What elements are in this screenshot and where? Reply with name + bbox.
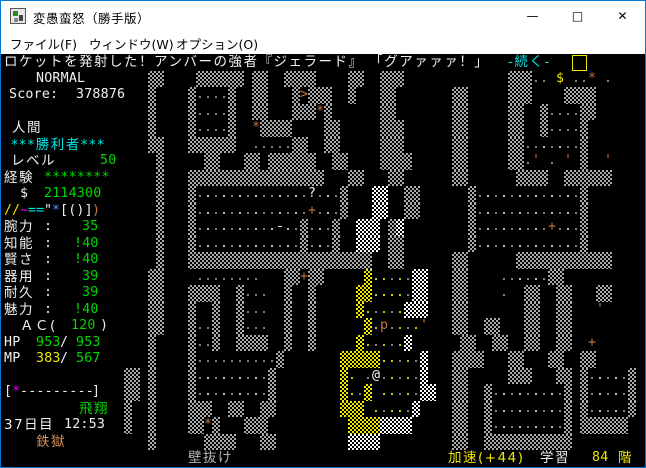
floor-empty: [580, 285, 588, 302]
floor-dot: .: [396, 351, 404, 368]
floor-dot: .: [204, 236, 212, 253]
floor-empty: [292, 318, 300, 335]
floor-dot: .: [492, 186, 500, 203]
maximize-button[interactable]: □: [555, 1, 600, 31]
wall-granite: [156, 269, 164, 286]
floor-empty: [348, 219, 356, 236]
floor-empty: [604, 137, 612, 154]
floor-empty: [372, 137, 380, 154]
floor-dot: .: [404, 269, 412, 286]
floor-empty: [308, 401, 316, 418]
floor-empty: [308, 368, 316, 385]
floor-empty: [348, 153, 356, 170]
floor-empty: [164, 384, 172, 401]
wall-granite: [380, 120, 388, 137]
floor-dot: .: [524, 236, 532, 253]
floor-dot: .: [236, 351, 244, 368]
wall-quartz: [396, 219, 404, 236]
floor-empty: [612, 87, 620, 104]
wall-granite: [212, 335, 220, 352]
floor-empty: [468, 87, 476, 104]
wall-granite: [516, 87, 524, 104]
floor-dot-vault: .: [388, 368, 396, 385]
floor-empty: [428, 351, 436, 368]
floor-empty: [436, 104, 444, 121]
floor-dot: .: [284, 186, 292, 203]
wall-granite: [468, 236, 476, 253]
floor-empty: [156, 434, 164, 451]
floor-empty: [420, 137, 428, 154]
floor-empty: [284, 401, 292, 418]
floor-dot-vault: .: [388, 285, 396, 302]
floor-empty: [236, 153, 244, 170]
wall-granite: [572, 87, 580, 104]
floor-empty: [308, 434, 316, 451]
floor-empty: [620, 302, 628, 319]
wall-granite: [300, 236, 308, 253]
wall-vault: [356, 417, 364, 434]
wall-quartz: [364, 236, 372, 253]
floor-empty: [476, 318, 484, 335]
floor-empty: [572, 302, 580, 319]
minimize-button[interactable]: —: [510, 1, 555, 31]
floor-dot: .: [476, 203, 484, 220]
wall-granite: [532, 318, 540, 335]
floor-empty: [604, 87, 612, 104]
floor-dot: .: [508, 203, 516, 220]
wall-granite: [388, 87, 396, 104]
map-glyph-gold: $: [556, 71, 564, 88]
floor-empty: [116, 335, 124, 352]
floor-empty: [364, 170, 372, 187]
floor-dot: .: [548, 384, 556, 401]
floor-dot: .: [388, 302, 396, 319]
floor-dot: .: [276, 203, 284, 220]
floor-dot: .: [380, 368, 388, 385]
wall-granite: [228, 252, 236, 269]
wall-granite: [220, 434, 228, 451]
floor-empty: [140, 318, 148, 335]
wall-granite: [284, 170, 292, 187]
floor-empty: [476, 120, 484, 137]
wall-granite: [580, 203, 588, 220]
floor-dot: .: [212, 384, 220, 401]
wall-granite: [460, 153, 468, 170]
floor-dot: .: [292, 236, 300, 253]
floor-dot-vault: .: [404, 384, 412, 401]
floor-empty: [132, 285, 140, 302]
floor-dot: .: [268, 236, 276, 253]
wall-granite: [388, 71, 396, 88]
floor-dot: .: [540, 186, 548, 203]
floor-dot: .: [244, 219, 252, 236]
floor-dot: .: [564, 203, 572, 220]
floor-dot: .: [556, 384, 564, 401]
floor-empty: [284, 351, 292, 368]
floor-empty: [516, 335, 524, 352]
wall-vault: [372, 351, 380, 368]
wall-granite: [460, 285, 468, 302]
wall-granite: [148, 71, 156, 88]
floor-empty: [452, 236, 460, 253]
wall-granite: [388, 104, 396, 121]
floor-dot: .: [252, 137, 260, 154]
floor-dot: .: [500, 236, 508, 253]
floor-empty: [316, 153, 324, 170]
floor-dot: .: [268, 219, 276, 236]
floor-empty: [164, 153, 172, 170]
sidebar-text: 鉄獄: [36, 434, 66, 451]
map-glyph-open-door: ': [564, 153, 572, 170]
wall-granite: [532, 335, 540, 352]
floor-empty: [404, 434, 412, 451]
wall-granite: [548, 269, 556, 286]
floor-empty: [284, 104, 292, 121]
floor-empty: [420, 219, 428, 236]
floor-empty: [628, 434, 636, 451]
floor-empty: [268, 269, 276, 286]
floor-dot: .: [620, 401, 628, 418]
floor-empty: [436, 269, 444, 286]
floor-dot: .: [556, 104, 564, 121]
floor-empty: [628, 269, 636, 286]
wall-granite: [236, 401, 244, 418]
wall-granite: [460, 401, 468, 418]
floor-empty: [140, 104, 148, 121]
floor-empty: [108, 219, 116, 236]
wall-granite: [292, 104, 300, 121]
floor-empty: [444, 170, 452, 187]
floor-empty: [436, 417, 444, 434]
floor-empty: [620, 186, 628, 203]
floor-dot: .: [196, 87, 204, 104]
floor-empty: [436, 252, 444, 269]
wall-granite: [260, 87, 268, 104]
floor-empty: [396, 203, 404, 220]
floor-dot: .: [324, 219, 332, 236]
floor-empty: [108, 186, 116, 203]
floor-empty: [548, 302, 556, 319]
floor-empty: [428, 137, 436, 154]
floor-empty: [564, 71, 572, 88]
floor-empty: [492, 285, 500, 302]
floor-empty: [140, 384, 148, 401]
message-text: ロケットを発射した！アンバーの強者『ジェラード』 「グアァァァ！」: [4, 54, 489, 71]
floor-empty: [268, 71, 276, 88]
wall-vault: [340, 368, 348, 385]
wall-granite: [388, 153, 396, 170]
wall-granite: [388, 236, 396, 253]
floor-dot: .: [556, 219, 564, 236]
floor-empty: [596, 120, 604, 137]
wall-quartz: [428, 384, 436, 401]
floor-dot: .: [284, 203, 292, 220]
floor-empty: [132, 401, 140, 418]
floor-dot: .: [604, 384, 612, 401]
wall-granite: [292, 170, 300, 187]
close-button[interactable]: ✕: [600, 1, 645, 31]
floor-empty: [604, 219, 612, 236]
floor-empty: [180, 318, 188, 335]
floor-dot: .: [516, 186, 524, 203]
sidebar-text: 567: [76, 351, 101, 368]
map-glyph-open-door: ': [532, 153, 540, 170]
floor-empty: [268, 285, 276, 302]
wall-granite: [628, 384, 636, 401]
sidebar-text: レベル: [11, 153, 56, 170]
floor-empty: [276, 87, 284, 104]
wall-granite: [284, 302, 292, 319]
wall-granite: [524, 87, 532, 104]
floor-empty: [140, 269, 148, 286]
floor-empty: [468, 137, 476, 154]
wall-granite: [452, 401, 460, 418]
floor-dot: .: [260, 285, 268, 302]
floor-empty: [388, 186, 396, 203]
floor-empty: [324, 335, 332, 352]
wall-granite: [452, 368, 460, 385]
wall-granite: [556, 351, 564, 368]
floor-empty: [164, 219, 172, 236]
floor-empty: [612, 335, 620, 352]
floor-empty: [172, 71, 180, 88]
floor-empty: [332, 170, 340, 187]
floor-dot: .: [260, 351, 268, 368]
wall-granite: [508, 434, 516, 451]
floor-empty: [188, 153, 196, 170]
floor-empty: [300, 335, 308, 352]
floor-empty: [220, 318, 228, 335]
wall-granite: [452, 318, 460, 335]
floor-empty: [332, 285, 340, 302]
floor-empty: [124, 285, 132, 302]
floor-empty: [620, 170, 628, 187]
floor-empty: [596, 236, 604, 253]
wall-granite: [148, 302, 156, 319]
floor-empty: [484, 104, 492, 121]
sidebar-text: !40: [74, 252, 99, 269]
floor-empty: [420, 104, 428, 121]
sidebar-text: [()]: [60, 203, 93, 220]
floor-dot: .: [564, 186, 572, 203]
floor-dot: .: [564, 104, 572, 121]
floor-empty: [116, 203, 124, 220]
sidebar-text: 39: [82, 269, 98, 286]
floor-empty: [292, 434, 300, 451]
floor-empty: [108, 401, 116, 418]
floor-empty: [356, 318, 364, 335]
floor-dot: .: [220, 219, 228, 236]
floor-empty: [620, 153, 628, 170]
floor-empty: [460, 71, 468, 88]
floor-empty: [108, 302, 116, 319]
floor-empty: [604, 269, 612, 286]
floor-dot: .: [372, 302, 380, 319]
floor-empty: [340, 104, 348, 121]
floor-empty: [124, 153, 132, 170]
floor-empty: [388, 203, 396, 220]
map-row: .'.'': [108, 153, 636, 170]
floor-empty: [148, 236, 156, 253]
wall-granite: [156, 170, 164, 187]
floor-empty: [364, 203, 372, 220]
floor-dot: .: [324, 186, 332, 203]
floor-empty: [140, 153, 148, 170]
floor-empty: [132, 318, 140, 335]
sidebar-text: ~: [20, 203, 28, 220]
floor-dot: .: [540, 203, 548, 220]
wall-granite: [188, 401, 196, 418]
floor-empty: [348, 285, 356, 302]
floor-empty: [476, 87, 484, 104]
wall-granite: [188, 219, 196, 236]
floor-dot-vault: .: [372, 285, 380, 302]
floor-empty: [116, 87, 124, 104]
floor-empty: [468, 170, 476, 187]
floor-empty: [492, 302, 500, 319]
floor-dot: .: [556, 186, 564, 203]
floor-dot: .: [204, 335, 212, 352]
floor-empty: [132, 170, 140, 187]
floor-dot: .: [196, 384, 204, 401]
floor-dot: .: [532, 186, 540, 203]
wall-granite: [308, 285, 316, 302]
floor-empty: [164, 252, 172, 269]
floor-empty: [324, 401, 332, 418]
floor-empty: [116, 219, 124, 236]
wall-granite: [460, 120, 468, 137]
floor-empty: [140, 252, 148, 269]
floor-dot: .: [540, 219, 548, 236]
wall-granite: [188, 104, 196, 121]
sidebar-text: 2114300: [44, 186, 101, 203]
floor-dot-vault: .: [380, 285, 388, 302]
floor-empty: [452, 203, 460, 220]
floor-dot: .: [228, 203, 236, 220]
sidebar-text: Score:: [9, 87, 58, 104]
floor-empty: [132, 186, 140, 203]
floor-dot: .: [260, 137, 268, 154]
floor-empty: [268, 417, 276, 434]
floor-empty: [180, 368, 188, 385]
floor-empty: [356, 104, 364, 121]
floor-dot: .: [220, 384, 228, 401]
wall-granite: [388, 219, 396, 236]
wall-granite: [156, 203, 164, 220]
wall-vault: [348, 401, 356, 418]
floor-dot: .: [204, 269, 212, 286]
map-row: *.........: [108, 417, 636, 434]
sidebar-text: ********: [44, 170, 110, 187]
floor-dot: .: [516, 417, 524, 434]
floor-empty: [428, 318, 436, 335]
floor-dot: .: [572, 203, 580, 220]
floor-empty: [172, 203, 180, 220]
wall-granite: [364, 252, 372, 269]
wall-granite: [252, 170, 260, 187]
wall-granite: [196, 137, 204, 154]
floor-empty: [628, 71, 636, 88]
wall-granite: [556, 252, 564, 269]
wall-granite: [356, 252, 364, 269]
menu-item-0[interactable]: ファイル(F): [10, 34, 77, 53]
floor-empty: [340, 417, 348, 434]
wall-granite: [332, 252, 340, 269]
floor-empty: [324, 170, 332, 187]
menu-item-2[interactable]: オプション(O): [176, 34, 258, 53]
wall-granite: [324, 104, 332, 121]
floor-empty: [628, 203, 636, 220]
wall-granite: [524, 318, 532, 335]
wall-granite: [228, 120, 236, 137]
floor-empty: [596, 87, 604, 104]
wall-granite: [220, 71, 228, 88]
floor-empty: [132, 120, 140, 137]
wall-granite: [204, 401, 212, 418]
floor-dot: .: [412, 384, 420, 401]
floor-empty: [588, 302, 596, 319]
floor-dot: .: [588, 384, 596, 401]
wall-granite: [284, 318, 292, 335]
wall-granite: [524, 434, 532, 451]
floor-empty: [164, 203, 172, 220]
floor-dot: .: [500, 186, 508, 203]
floor-empty: [140, 335, 148, 352]
floor-empty: [156, 335, 164, 352]
wall-granite: [516, 434, 524, 451]
wall-granite: [132, 368, 140, 385]
floor-empty: [220, 302, 228, 319]
floor-empty: [572, 434, 580, 451]
floor-dot: .: [508, 236, 516, 253]
floor-empty: [484, 351, 492, 368]
floor-empty: [172, 417, 180, 434]
floor-empty: [612, 137, 620, 154]
menu-item-1[interactable]: ウィンドウ(W): [89, 34, 174, 53]
wall-granite: [156, 186, 164, 203]
title-bar[interactable]: 変愚蛮怒（勝手版） — □ ✕: [1, 1, 645, 31]
floor-empty: [468, 252, 476, 269]
floor-empty: [356, 87, 364, 104]
floor-empty: [604, 434, 612, 451]
floor-dot: .: [268, 186, 276, 203]
floor-empty: [468, 269, 476, 286]
floor-empty: [412, 170, 420, 187]
floor-empty: [436, 434, 444, 451]
wall-vault: [364, 269, 372, 286]
floor-empty: [620, 285, 628, 302]
floor-dot: .: [316, 186, 324, 203]
floor-empty: [316, 351, 324, 368]
wall-granite: [228, 401, 236, 418]
floor-empty: [340, 120, 348, 137]
floor-empty: [156, 120, 164, 137]
floor-empty: [548, 170, 556, 187]
floor-empty: [180, 186, 188, 203]
floor-empty: [612, 236, 620, 253]
floor-empty: [500, 104, 508, 121]
floor-empty: [508, 285, 516, 302]
floor-empty: [444, 401, 452, 418]
floor-dot: .: [220, 236, 228, 253]
floor-empty: [436, 203, 444, 220]
floor-empty: [436, 368, 444, 385]
floor-empty: [428, 186, 436, 203]
floor-empty: [228, 417, 236, 434]
wall-granite: [508, 87, 516, 104]
floor-empty: [588, 120, 596, 137]
sidebar-text: 120: [71, 318, 96, 335]
